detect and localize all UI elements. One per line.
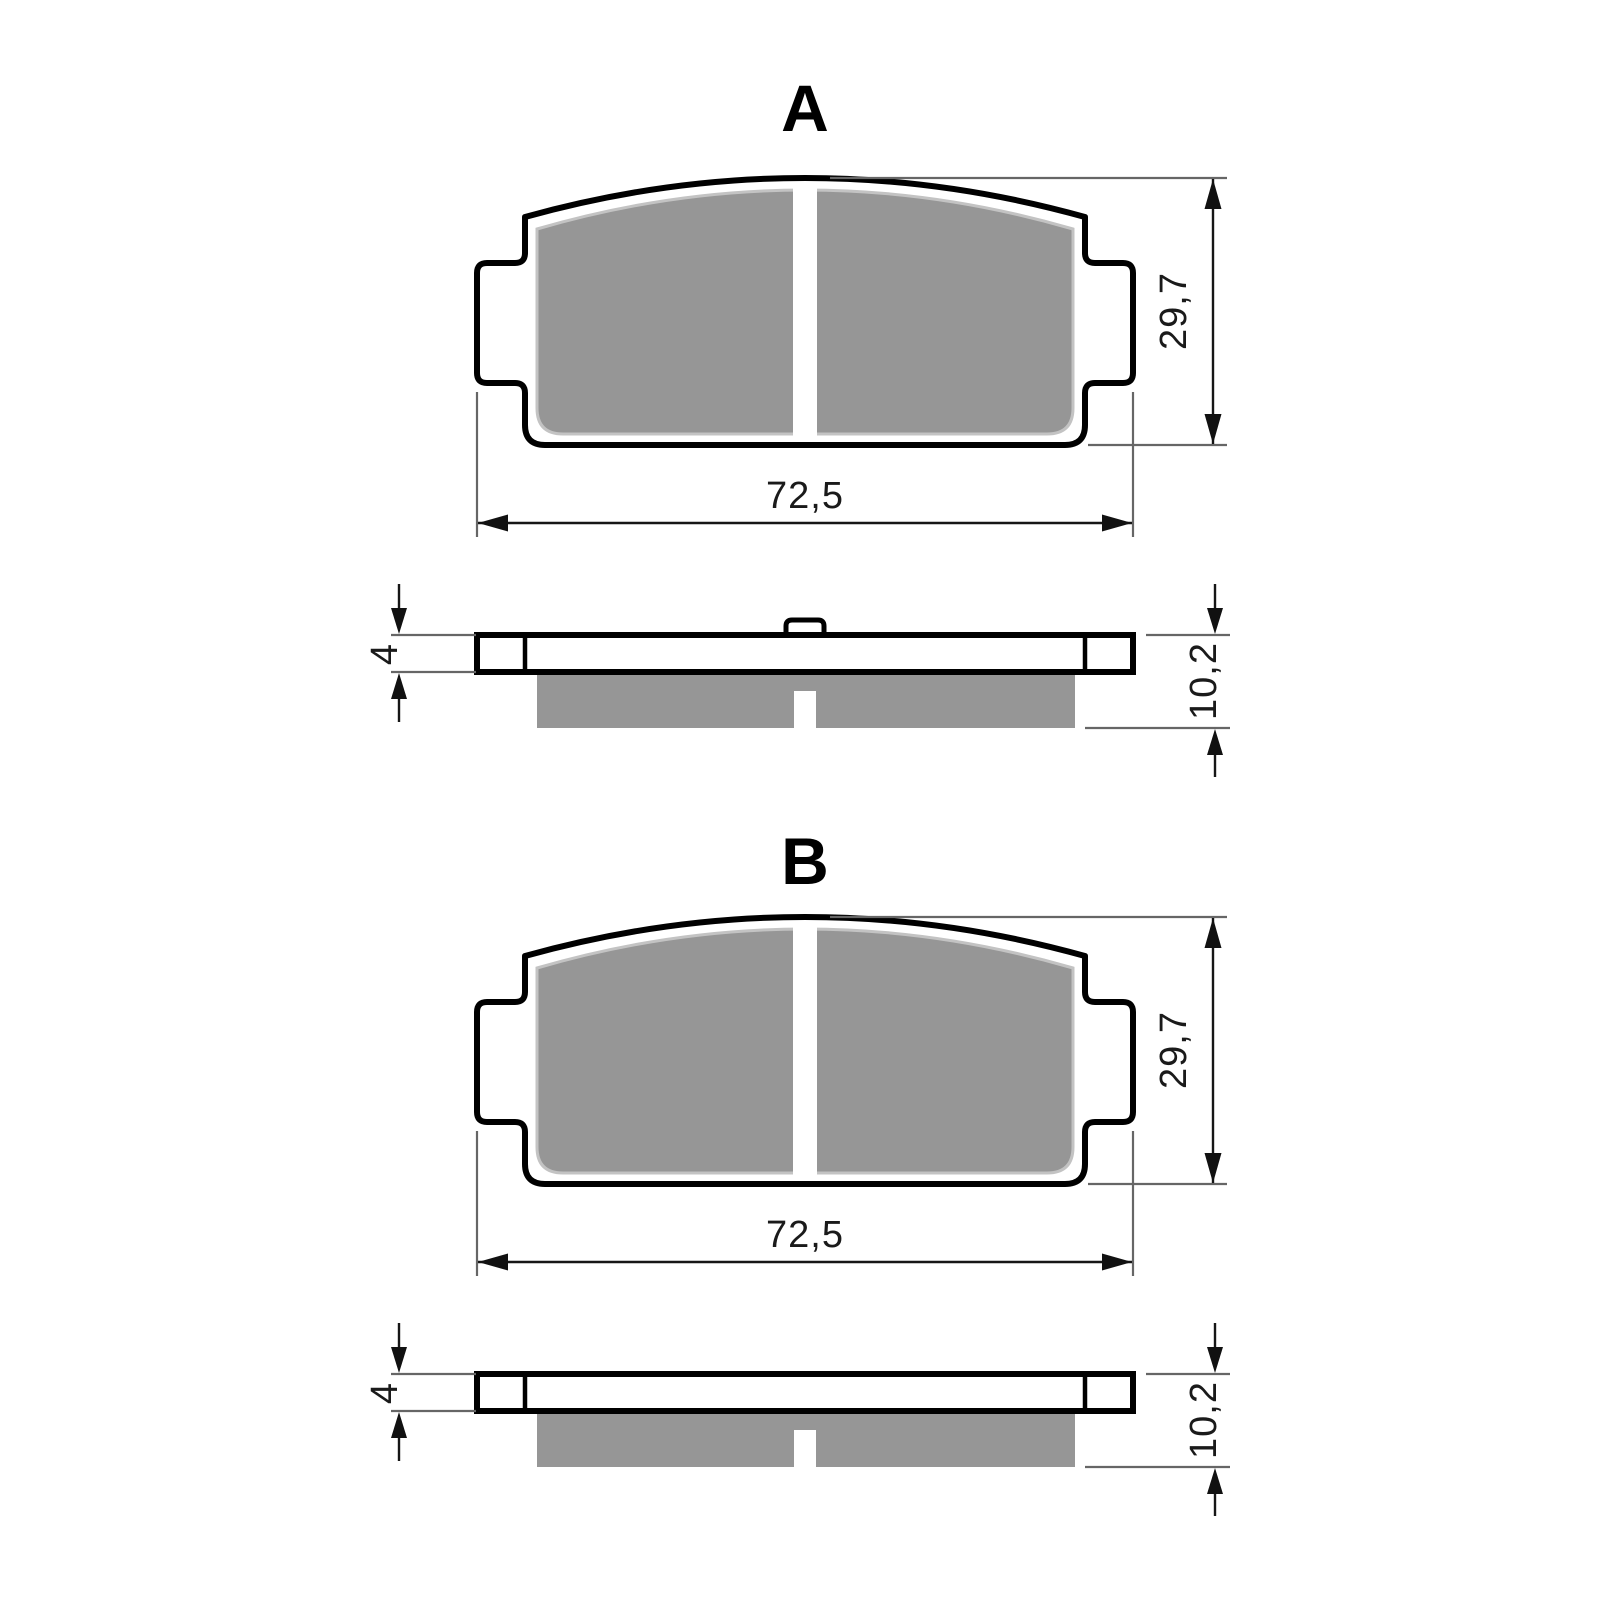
- dim-a-plate-arrow-bottom: [391, 673, 407, 699]
- figure-a: A 29,7 72,5 4: [364, 71, 1230, 777]
- dim-a-width-label: 72,5: [766, 475, 844, 517]
- dim-a-total-label: 10,2: [1183, 642, 1225, 720]
- dim-b-width-label: 72,5: [766, 1214, 844, 1256]
- pad-b-side-backplate: [477, 1374, 1133, 1411]
- dim-a-height-label: 29,7: [1153, 272, 1195, 350]
- drawing-canvas: A 29,7 72,5 4: [0, 0, 1600, 1600]
- dim-b-height-arrow-top: [1205, 918, 1222, 948]
- dim-b-height-label: 29,7: [1153, 1011, 1195, 1089]
- dim-a-total-arrow-bottom: [1207, 729, 1223, 755]
- dim-a-plate-label: 4: [364, 643, 406, 665]
- dim-a-width-arrow-left: [478, 515, 508, 532]
- pad-a-side-notch: [794, 691, 816, 728]
- dim-a-width-arrow-right: [1102, 515, 1132, 532]
- dim-b-width-arrow-right: [1102, 1254, 1132, 1271]
- dim-a-plate-arrow-top: [391, 608, 407, 634]
- figure-b-label: B: [781, 824, 829, 898]
- dim-b-plate-arrow-top: [391, 1347, 407, 1373]
- pad-b-friction-gap: [793, 923, 817, 1176]
- dim-a-total-arrow-top: [1207, 608, 1223, 634]
- dim-b-total-arrow-bottom: [1207, 1468, 1223, 1494]
- figure-b: B 29,7 72,5 4: [364, 824, 1230, 1516]
- pad-a-side-backplate: [477, 635, 1133, 672]
- dim-b-total-arrow-top: [1207, 1347, 1223, 1373]
- dim-a-height-arrow-bottom: [1205, 414, 1222, 444]
- pad-a-friction-gap: [793, 184, 817, 437]
- dim-b-total-label: 10,2: [1183, 1381, 1225, 1459]
- technical-drawing: A 29,7 72,5 4: [0, 0, 1600, 1600]
- dim-a-height-arrow-top: [1205, 179, 1222, 209]
- figure-a-label: A: [781, 71, 829, 145]
- dim-b-width-arrow-left: [478, 1254, 508, 1271]
- dim-b-plate-arrow-bottom: [391, 1412, 407, 1438]
- pad-b-side-notch: [794, 1430, 816, 1467]
- dim-b-height-arrow-bottom: [1205, 1153, 1222, 1183]
- dim-b-plate-label: 4: [364, 1382, 406, 1404]
